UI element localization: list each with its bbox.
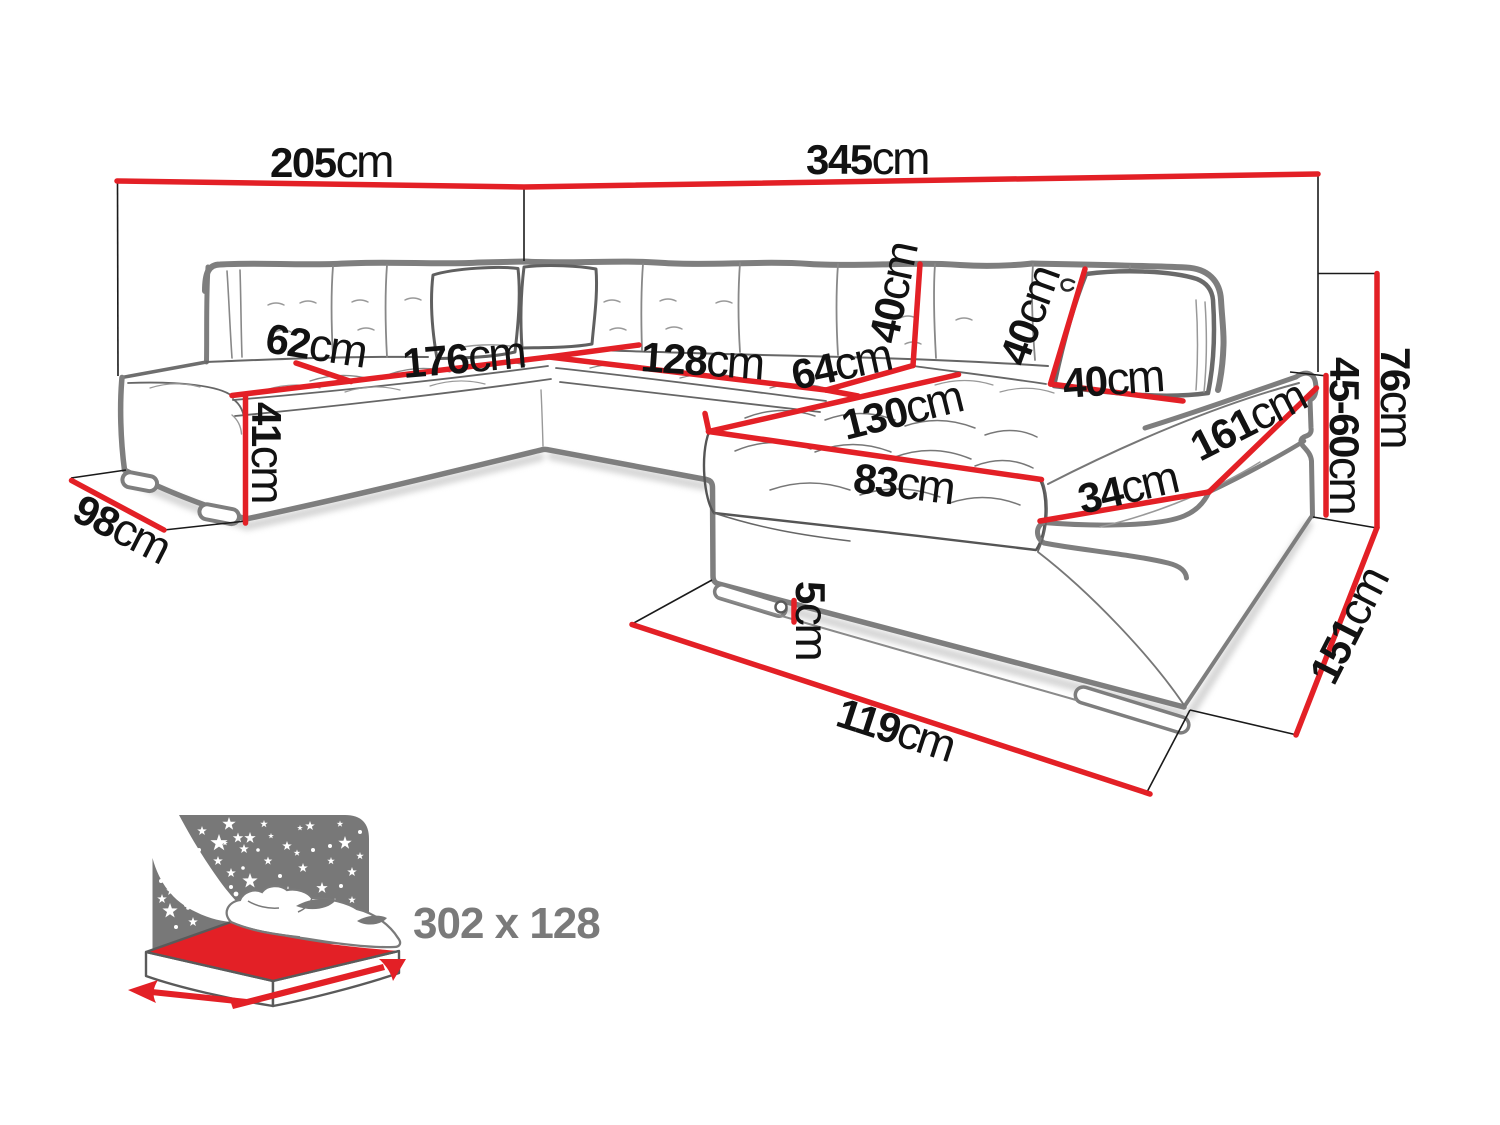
svg-text:76cm: 76cm bbox=[1371, 347, 1423, 447]
svg-text:345cm: 345cm bbox=[806, 132, 928, 184]
svg-text:302 x 128: 302 x 128 bbox=[413, 899, 600, 948]
svg-text:128cm: 128cm bbox=[639, 329, 764, 389]
svg-text:41cm: 41cm bbox=[242, 402, 294, 502]
svg-text:205cm: 205cm bbox=[270, 135, 392, 187]
svg-text:5cm: 5cm bbox=[786, 581, 838, 659]
svg-text:45-60cm: 45-60cm bbox=[1320, 357, 1372, 513]
